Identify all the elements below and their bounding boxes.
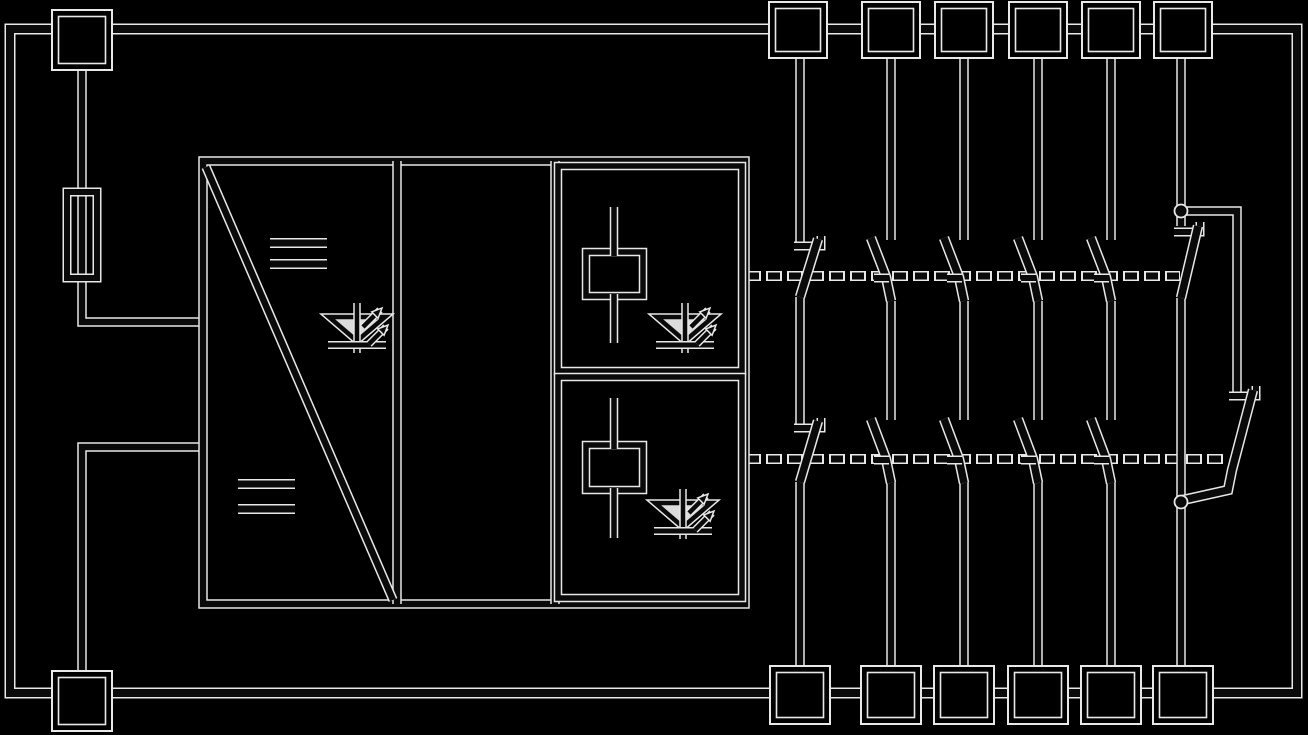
terminal-bottom-5 [1081,666,1141,724]
col4-no-blade-lower [1018,419,1038,483]
led-power-indicator [328,303,388,353]
terminal-top-1 [769,2,827,58]
col5-no-blade-lower [1091,419,1111,483]
terminal-bottom-1 [770,666,830,724]
terminal-top-6 [1154,2,1212,58]
schematic-page [0,0,1308,735]
converter-diagonal [206,167,393,600]
col5-no-blade-upper [1091,238,1111,301]
col2-no-blade-lower [871,419,891,483]
col2-no-blade-upper [871,238,891,301]
terminal-bottom-4 [1008,666,1068,724]
converter-block-outline [203,161,745,604]
col6-junction-top [1175,205,1188,218]
col6-nc-blade-upper [1181,226,1198,298]
relay1-coil-box [586,252,643,296]
supply-return-wire [82,447,204,675]
relay-module-circuit-diagram [0,0,1308,735]
col3-no-blade-upper [944,238,964,301]
relay2-coil-box [586,445,643,490]
terminal-bottom-2 [861,666,921,724]
col4-no-blade-upper [1018,238,1038,301]
led-relay2-indicator [654,489,714,539]
col6-junction-bottom [1175,496,1188,509]
col6-nc-blade-lower [1183,390,1253,500]
terminal-top-left [52,10,112,70]
col3-no-blade-lower [944,419,964,483]
terminal-top-3 [935,2,993,58]
col6-branch-wire [1181,211,1237,396]
terminal-top-5 [1082,2,1140,58]
terminal-bottom-left [52,671,112,731]
led-relay1-indicator [656,303,716,353]
terminal-bottom-3 [934,666,994,724]
terminal-top-2 [862,2,920,58]
terminal-top-4 [1009,2,1067,58]
terminal-bottom-6 [1153,666,1213,724]
